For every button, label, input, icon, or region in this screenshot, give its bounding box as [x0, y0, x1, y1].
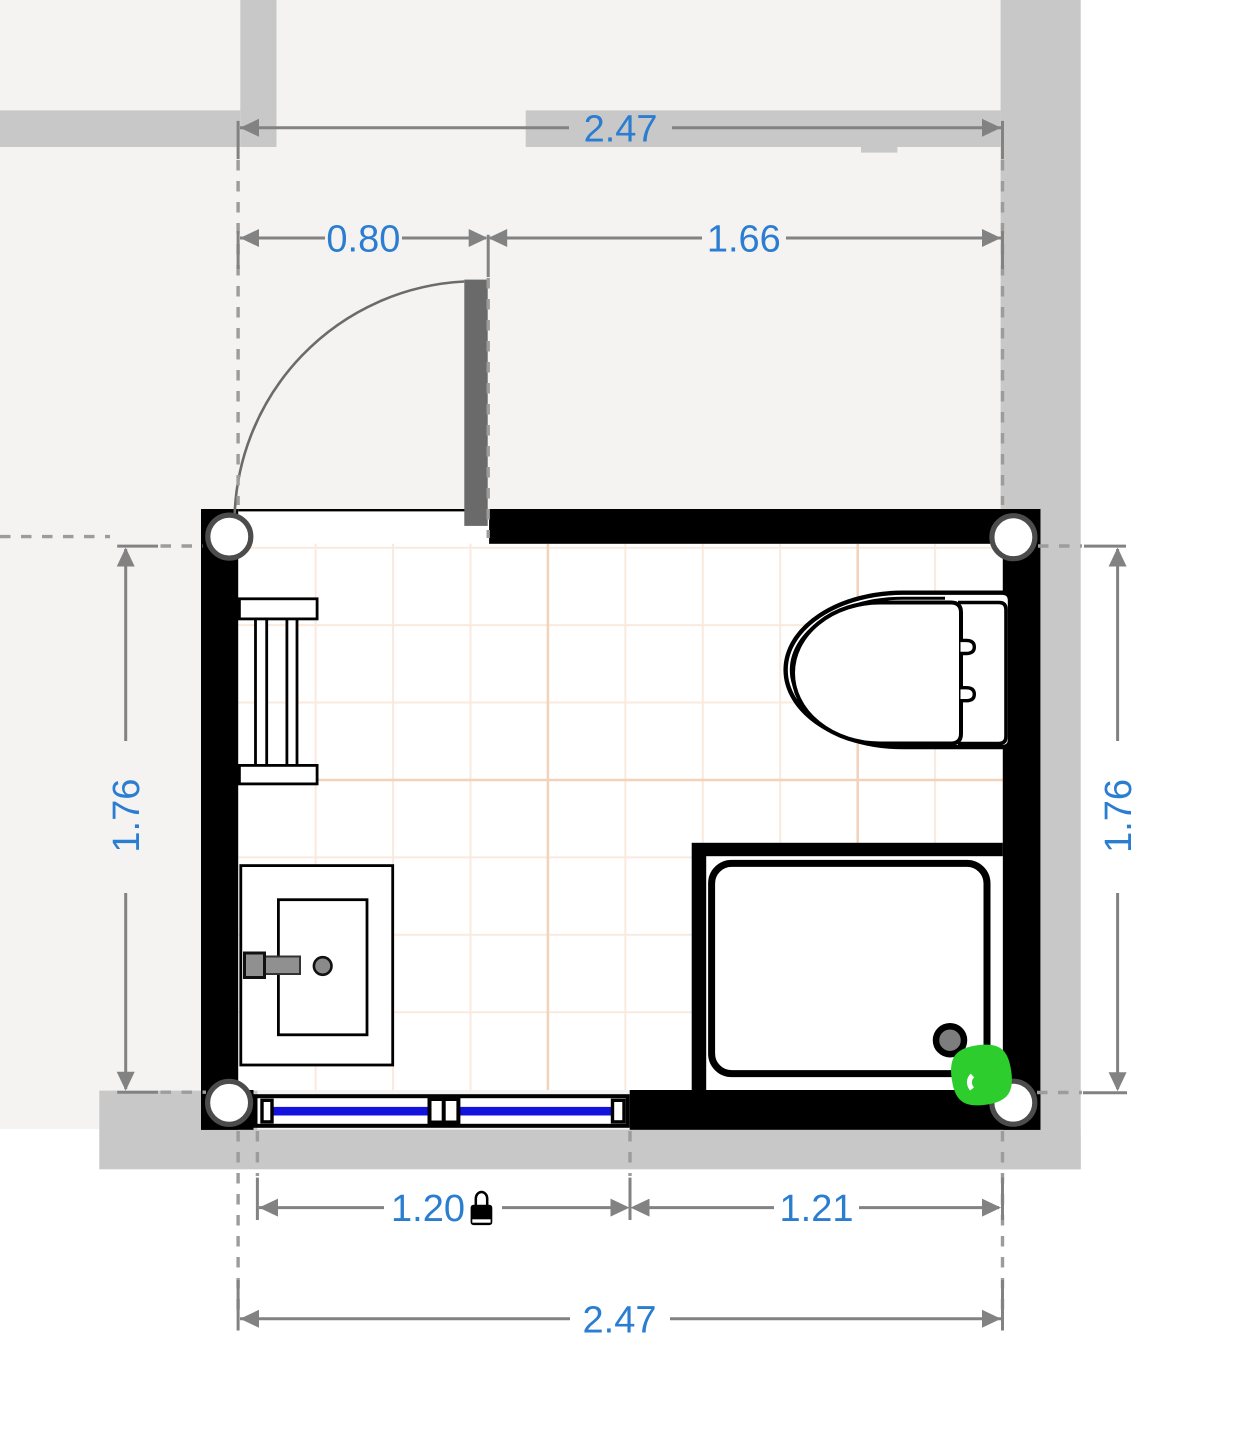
svg-text:1.76: 1.76 [1098, 779, 1140, 853]
svg-text:0.80: 0.80 [326, 219, 400, 261]
svg-text:1.76: 1.76 [106, 779, 148, 853]
svg-text:1.21: 1.21 [780, 1188, 854, 1230]
svg-text:1.66: 1.66 [707, 219, 781, 261]
svg-text:1.20: 1.20 [391, 1188, 465, 1230]
svg-text:2.47: 2.47 [583, 1299, 657, 1341]
svg-text:2.47: 2.47 [584, 108, 658, 150]
